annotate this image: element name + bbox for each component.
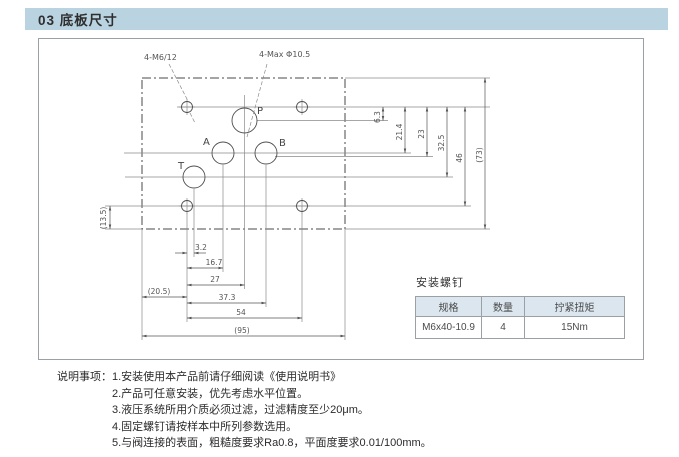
notes-section: 说明事项： 1.安装使用本产品前请仔细阅读《使用说明书》 2.产品可任意安装，优… [57,369,432,452]
dim-label-p-x: 27 [210,275,220,284]
dim-label-plate-height: (73) [475,147,484,162]
dim-label-screws-x: 54 [236,308,246,317]
port-label-a: A [203,137,210,148]
dim-label-plate-width: (95) [234,326,249,335]
plate-outline [142,78,345,229]
table-header-spec: 规格 [416,297,482,317]
port-label-b: B [279,138,286,149]
section-title: 03 底板尺寸 [25,9,118,29]
dim-label-bottom-margin: (13.5) [99,207,108,230]
note-line-1: 1.安装使用本产品前请仔细阅读《使用说明书》 [112,369,432,386]
table-header-torque: 拧紧扭矩 [525,297,625,317]
dim-label-center-y: 23 [417,129,426,139]
port-label-t: T [177,161,185,172]
dim-label-t-x: 3.2 [195,243,207,252]
mounting-screw-section: 安装螺钉 规格 数量 拧紧扭矩 M6x40-10.9 4 15Nm [415,274,625,339]
dim-label-ab-y: 21.4 [395,123,404,140]
table-cell-qty: 4 [482,317,525,339]
notes-label: 说明事项： [57,369,112,386]
dim-lines-bottom [142,253,345,336]
dim-lines-right [383,78,485,229]
note-line-3: 3.液压系统所用介质必须过滤，过滤精度至少20μm。 [112,402,432,419]
callout-port-max: 4-Max Φ10.5 [259,50,310,59]
dim-label-edge-offset: (20.5) [148,287,171,296]
callout-leaders [169,64,267,137]
section-header-bar: 03 底板尺寸 [25,8,668,30]
table-cell-torque: 15Nm [525,317,625,339]
table-row: M6x40-10.9 4 15Nm [416,317,625,339]
callout-screw-holes: 4-M6/12 [144,53,177,62]
mounting-screw-table: 规格 数量 拧紧扭矩 M6x40-10.9 4 15Nm [415,296,625,339]
drawing-panel: 4-M6/12 4-Max Φ10.5 P A B T 6.3 21.4 23 … [38,38,644,360]
table-cell-spec: M6x40-10.9 [416,317,482,339]
dim-label-screws-y: 46 [455,153,464,163]
dim-label-a-x: 16.7 [206,258,223,267]
dim-label-p-y: 6.3 [373,111,382,123]
note-line-2: 2.产品可任意安装，优先考虑水平位置。 [112,386,432,403]
table-header-row: 规格 数量 拧紧扭矩 [416,297,625,317]
table-header-qty: 数量 [482,297,525,317]
mounting-screw-title: 安装螺钉 [416,274,625,290]
note-lines: 1.安装使用本产品前请仔细阅读《使用说明书》 2.产品可任意安装，优先考虑水平位… [112,369,432,452]
note-line-4: 4.固定螺钉请按样本中所列参数选用。 [112,419,432,436]
port-label-p: P [257,106,263,117]
dim-label-t-y: 32.5 [437,134,446,151]
note-line-5: 5.与阀连接的表面，粗糙度要求Ra0.8，平面度要求0.01/100mm。 [112,435,432,452]
dim-label-b-x: 37.3 [219,293,236,302]
